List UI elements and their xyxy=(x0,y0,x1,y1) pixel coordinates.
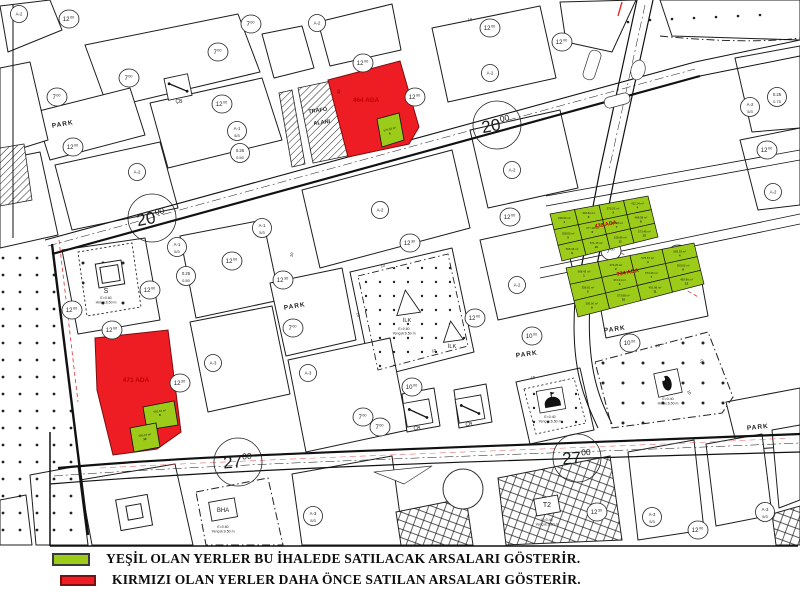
zone-label: A-2 xyxy=(514,283,521,288)
zone-label: 0.25 xyxy=(182,271,191,276)
playground-label: ÇB xyxy=(466,422,474,428)
parcel-no: 12 xyxy=(643,234,647,238)
parcel-no: 11 xyxy=(653,290,657,294)
t2-crosshatch-block xyxy=(498,456,622,545)
roundabout xyxy=(443,469,483,509)
legend-swatch-green xyxy=(52,553,90,566)
legend-row-red: KIRMIZI OLAN YERLER DAHA ÖNCE SATILAN AR… xyxy=(60,572,581,588)
zone-label-sub: 0.50 xyxy=(182,278,191,283)
zone-label-sub: 0.50 xyxy=(236,155,245,160)
zone-label: A-3 xyxy=(210,361,217,366)
zone-label: A-1 xyxy=(234,126,241,131)
playground-label: ÇB xyxy=(176,99,184,105)
playground-label: ÇB xyxy=(414,426,422,432)
plan-note: Yençok:6.50 m xyxy=(538,420,561,424)
social-facility-label: S xyxy=(104,288,109,295)
legend: YEŞİL OLAN YERLER BU İHALEDE SATILACAK A… xyxy=(52,551,581,588)
zoning-map-page: 1200120012001200120012001200120012001200… xyxy=(0,0,800,610)
traffic-island xyxy=(582,49,603,81)
zone-label: A-3 xyxy=(649,512,656,517)
plan-note: E=0.60 xyxy=(100,296,111,300)
zone-label-sub: 5/3 xyxy=(259,230,265,235)
plan-note: Hmax:6.50 m xyxy=(96,301,117,305)
zone-label: 0.25 xyxy=(236,148,245,153)
school-label: İLK xyxy=(448,343,457,350)
zone-label: A-2 xyxy=(377,208,384,213)
zone-label-sub: 5/3 xyxy=(747,109,753,114)
city-block xyxy=(0,62,48,155)
ada-label: 464 ADA xyxy=(353,97,380,104)
parcel-no: 12 xyxy=(685,282,689,286)
parcel-no: 10 xyxy=(594,245,598,249)
traffic-island xyxy=(629,59,648,82)
plan-note: Hmax:6.50 m xyxy=(658,402,679,406)
hatch-strip xyxy=(0,144,32,206)
city-block xyxy=(190,306,290,412)
crosshatch-block xyxy=(772,506,800,545)
bha-label: BHA xyxy=(217,508,229,514)
zone-label-sub: 0.75 xyxy=(773,99,782,104)
bha-block xyxy=(196,478,283,545)
zone-label: 0.25 xyxy=(773,92,782,97)
zone-label: A-2 xyxy=(770,190,777,195)
city-block xyxy=(0,0,62,52)
zone-label: A-2 xyxy=(16,12,23,17)
zone-label: A-2 xyxy=(747,102,754,107)
city-block xyxy=(292,456,404,545)
legend-swatch-red xyxy=(60,575,96,586)
city-block xyxy=(262,26,314,78)
zone-label: A-2 xyxy=(487,71,494,76)
legend-text-red: KIRMIZI OLAN YERLER DAHA ÖNCE SATILAN AR… xyxy=(112,572,581,588)
zone-label-sub: 5/3 xyxy=(234,133,240,138)
city-block xyxy=(735,46,800,132)
t2-label: T2 xyxy=(543,502,551,509)
zone-label-sub: 5/3 xyxy=(649,519,655,524)
legend-text-green: YEŞİL OLAN YERLER BU İHALEDE SATILACAK A… xyxy=(106,551,580,567)
city-block xyxy=(772,425,800,508)
plan-note: Yençok:6.50 m xyxy=(392,332,415,336)
parcel-no: 10 xyxy=(622,297,626,301)
zone-label-sub: 5/3 xyxy=(762,514,768,519)
zone-label: A-3 xyxy=(762,507,769,512)
traffic-island xyxy=(603,92,631,109)
plan-note: E=0.60 xyxy=(217,525,228,529)
parcel-no: 11 xyxy=(619,239,623,243)
school-label: İLK xyxy=(403,317,412,324)
zoning-map: 1200120012001200120012001200120012001200… xyxy=(0,0,800,548)
zone-label-sub: 5/3 xyxy=(310,518,316,523)
social-facility-icon-inner xyxy=(100,265,120,284)
zone-label: A-3 xyxy=(310,511,317,516)
park-label: PARK xyxy=(515,350,538,360)
zone-label: A-1 xyxy=(174,242,181,247)
ada-label: 471 ADA xyxy=(123,377,150,384)
zone-label: A-2 xyxy=(134,170,141,175)
street-width-label: 2700 xyxy=(222,451,252,473)
plan-note: Yençok:9.50 m xyxy=(211,530,234,534)
zone-label: A-3 xyxy=(305,371,312,376)
legend-row-green: YEŞİL OLAN YERLER BU İHALEDE SATILACAK A… xyxy=(52,551,581,567)
trafo-square-icon-inner xyxy=(126,504,143,520)
zone-label-sub: 5/3 xyxy=(174,249,180,254)
plan-note: E=0.40 xyxy=(544,415,555,419)
plan-note: E=0.40 xyxy=(662,397,673,401)
setback-mark: 10 xyxy=(289,251,295,257)
plan-note: Yençok:6.50 m xyxy=(535,523,558,527)
zone-label: A-1 xyxy=(259,223,266,228)
zone-label: A-2 xyxy=(509,168,516,173)
zone-label: A-2 xyxy=(314,21,321,26)
plan-note: E=0.40 xyxy=(541,518,552,522)
plan-note: E=0.60 xyxy=(398,327,409,331)
city-block xyxy=(660,0,800,40)
